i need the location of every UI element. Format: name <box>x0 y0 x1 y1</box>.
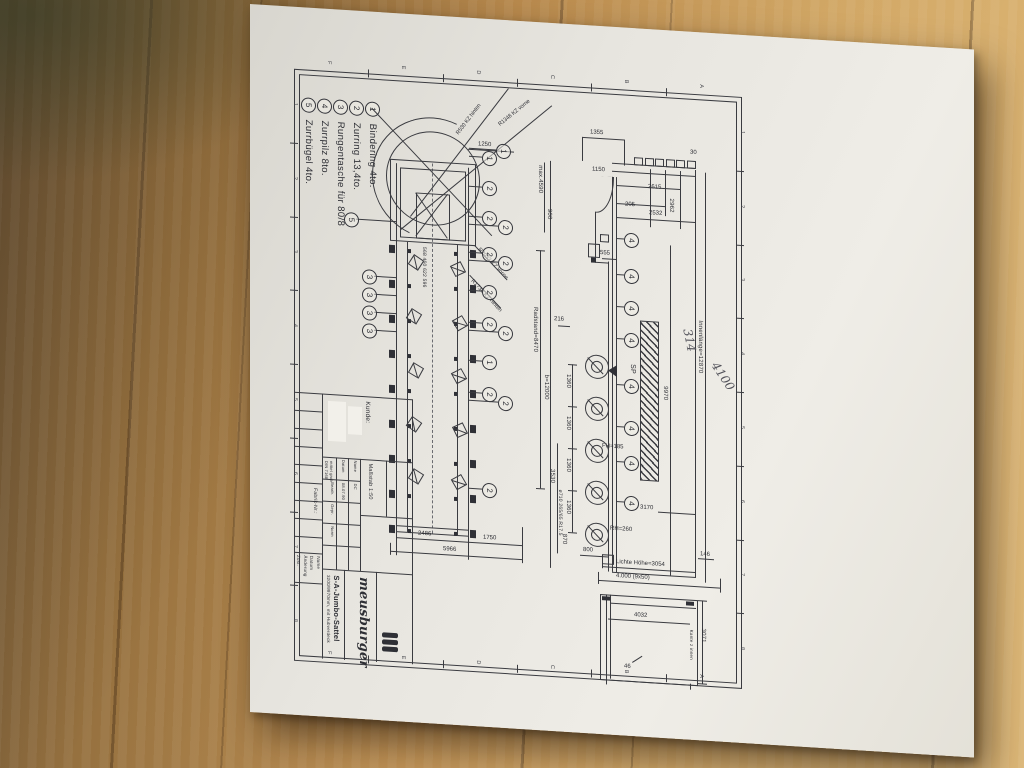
legend-number-3: 3 <box>333 99 348 115</box>
stake-pocket <box>408 389 411 393</box>
grid-ref-number: 8 <box>292 619 298 623</box>
legend-number-4: 4 <box>317 98 332 114</box>
dim-30: 30 <box>690 150 697 156</box>
drawing-line <box>390 543 391 555</box>
stake-pocket <box>389 350 395 358</box>
drawing-line <box>290 142 298 144</box>
drawing-line <box>670 245 671 575</box>
dim-4032: 4032 <box>634 612 647 619</box>
grid-ref-number: 4 <box>292 324 298 328</box>
stake-pocket <box>389 385 395 393</box>
legend-item-2: Zurring 13,4to. <box>351 122 361 190</box>
drawing-line <box>544 162 545 232</box>
stake-pocket <box>454 497 457 501</box>
drawing-line <box>412 399 413 664</box>
drawing-line <box>386 461 387 517</box>
front-fitting <box>634 157 643 166</box>
product-name: S-A-Jumbo-Sattel <box>333 575 341 642</box>
scale-label: Maßstab 1:50 <box>367 463 373 499</box>
drawing-line <box>666 88 667 96</box>
callout-circle-2: 2 <box>498 220 513 236</box>
dim-5966: 5966 <box>443 546 456 553</box>
product-subtitle: 3200/9970mm, mit Hubverdeck <box>326 575 331 643</box>
drawing-line <box>413 364 418 378</box>
grid-ref-number: 1 <box>739 131 745 135</box>
drawing-line <box>413 469 418 483</box>
drawing-line <box>443 660 444 668</box>
drawing-line <box>690 684 691 690</box>
drawing-line <box>640 321 659 482</box>
drawing-line <box>290 511 298 513</box>
grid-ref-letter: E <box>400 65 406 69</box>
dim-1360-d: 1360 <box>565 500 571 515</box>
drawing-line <box>290 585 298 587</box>
grid-ref-letter: F <box>326 651 332 655</box>
drawing-line <box>368 69 369 77</box>
grid-ref-number: 1 <box>292 102 298 106</box>
drawing-line <box>290 437 298 439</box>
callout-circle-2: 2 <box>498 256 513 272</box>
drawing-line <box>382 646 398 652</box>
drawing-line <box>624 140 625 166</box>
stake-pocket <box>389 420 395 428</box>
rev-name: Name <box>316 556 321 569</box>
dim-46: 46 <box>624 664 631 670</box>
grid-ref-number: 2 <box>292 176 298 180</box>
dim-1250: 1250 <box>478 141 491 148</box>
callout-circle-2: 2 <box>498 396 513 412</box>
dim-2962: 2962 <box>668 198 674 213</box>
legend-item-3: Rungentasche für 80/8 <box>335 121 345 226</box>
grid-ref-number: 4 <box>739 352 745 356</box>
row-bearb: Bearb. <box>330 482 334 495</box>
front-fitting <box>676 160 685 169</box>
rev-zust: Zust. <box>296 555 301 566</box>
col-datum: Datum <box>341 460 345 473</box>
drawing-line <box>517 665 518 673</box>
dim-total-length: b=12000 <box>543 374 549 399</box>
drawing-line <box>591 669 592 677</box>
grid-ref-letter: A <box>697 84 703 88</box>
drawing-line <box>322 394 323 659</box>
dim-3530: 3530 <box>549 469 555 484</box>
drawing-line <box>522 527 523 563</box>
dim-900: 900 <box>546 209 552 220</box>
dim-3170: 3170 <box>640 505 653 512</box>
drawing-line <box>705 173 706 583</box>
stake-pocket <box>470 460 476 468</box>
desk-photo: 1122334455667788FFEEDDCCBBAA 1Bindering … <box>0 0 1024 768</box>
drawing-line <box>695 170 696 577</box>
grid-ref-number: 2 <box>739 204 745 208</box>
stake-pocket <box>470 530 476 538</box>
paper-sheet: 1122334455667788FFEEDDCCBBAA 1Bindering … <box>250 4 974 758</box>
grid-ref-number: 7 <box>292 545 298 549</box>
dim-1360-b: 1360 <box>565 416 571 431</box>
legend-item-5: Zurrbügel 4to. <box>303 119 313 184</box>
callout-circle-4: 4 <box>624 496 639 512</box>
grid-ref-letter: D <box>474 660 480 665</box>
grid-ref-letter: C <box>549 665 555 670</box>
drawing-line <box>686 601 694 606</box>
dim-pocket-spacing: 568 460 622 596 <box>421 247 426 288</box>
dim-wheelbase: Radstand=8470 <box>532 307 538 353</box>
drawing-line <box>443 74 444 82</box>
stake-pocket <box>454 252 457 256</box>
drawing-line <box>348 406 362 435</box>
dim-tyre: ø710 265/65 R17.5 <box>557 489 562 536</box>
drawing-line <box>602 556 603 568</box>
drawing-line <box>411 309 416 323</box>
note-kante: Kante z innen <box>689 630 694 660</box>
dim-2615: 2615 <box>648 184 661 191</box>
grid-ref-letter: C <box>549 75 555 80</box>
grid-ref-letter: B <box>623 79 629 83</box>
drawing-line <box>608 262 609 572</box>
stake-pocket <box>408 249 411 253</box>
drawing-line <box>344 570 345 660</box>
grid-ref-letter: E <box>400 655 406 659</box>
grid-ref-letter: F <box>326 61 332 65</box>
tolerance-1: DIN 7168 <box>324 461 328 480</box>
drawing-line <box>602 596 610 601</box>
drawing-line <box>550 161 551 568</box>
dim-max4590: max.4590 <box>537 165 543 193</box>
stake-pocket <box>389 245 395 253</box>
cell-date: 08.07.90 <box>341 483 345 500</box>
callout-circle-5: 5 <box>344 212 359 228</box>
stake-pocket <box>408 354 411 358</box>
dim-800: 800 <box>583 547 593 554</box>
callout-circle-4: 4 <box>624 301 639 317</box>
drawing-line <box>517 79 518 87</box>
callout-circle-4: 4 <box>624 233 639 249</box>
stake-pocket <box>389 490 395 498</box>
customer-label: Kunde: <box>364 401 371 423</box>
drawing-line <box>600 234 609 243</box>
dim-1750: 1750 <box>483 535 496 542</box>
grid-ref-number: 6 <box>292 471 298 475</box>
drawing-line <box>290 290 298 292</box>
row-gepr: Gepr. <box>330 504 334 515</box>
stake-pocket <box>389 315 395 323</box>
stake-pocket <box>408 529 411 533</box>
drawing-line <box>457 245 458 535</box>
drawing-line <box>591 257 596 262</box>
callout-circle-4: 4 <box>624 333 639 349</box>
callout-circle-4: 4 <box>624 421 639 437</box>
tolerance-2: mittel grob <box>329 461 333 482</box>
legend-number-2: 2 <box>349 100 364 116</box>
stake-pocket <box>454 357 457 361</box>
drawing-line <box>452 374 466 379</box>
stake-pocket <box>408 494 411 498</box>
dim-1360-c: 1360 <box>565 458 571 473</box>
drawing-line <box>540 250 541 488</box>
stake-pocket <box>454 392 457 396</box>
drawing-line <box>606 594 607 678</box>
callout-circle-1: 1 <box>496 143 511 159</box>
factory-number-label: Fabrik-Nr.: <box>312 488 317 514</box>
callout-circle-2: 2 <box>482 483 497 499</box>
rev-datum: Datum <box>309 556 314 571</box>
drawing-line <box>382 639 398 645</box>
rev-aenderung: Änderung <box>303 555 308 576</box>
dim-146: 146 <box>700 551 710 558</box>
drawing-line <box>290 364 298 366</box>
grid-ref-number: 8 <box>739 647 745 651</box>
drawing-line <box>591 83 592 91</box>
callout-circle-4: 4 <box>624 269 639 285</box>
legend-item-4: Zurrpilz 8to. <box>319 120 329 176</box>
grid-ref-number: 5 <box>292 397 298 401</box>
col-name: Name <box>353 460 357 472</box>
dim-3071: 3071 <box>700 628 706 643</box>
drawing-line <box>598 572 599 584</box>
stake-pocket <box>470 425 476 433</box>
drawing-line <box>452 480 466 485</box>
dim-555: 555 <box>600 250 610 257</box>
front-fitting <box>666 159 675 168</box>
callout-circle-2: 2 <box>482 285 497 301</box>
front-fitting <box>687 160 696 169</box>
front-fitting <box>645 158 654 167</box>
dim-205: 205 <box>625 202 635 209</box>
legend-number-5: 5 <box>301 97 316 113</box>
grid-ref-number: 3 <box>292 250 298 254</box>
front-fitting <box>655 158 664 167</box>
cell-initials: DC <box>353 483 357 489</box>
drawing-line <box>720 579 721 593</box>
stake-pocket <box>470 495 476 503</box>
dim-2486: 2486 <box>418 531 431 538</box>
callout-circle-4: 4 <box>624 456 639 472</box>
row-norm: Norm <box>330 526 334 537</box>
callout-circle-1: 1 <box>482 151 497 167</box>
stake-pocket <box>389 280 395 288</box>
drawing-line <box>290 216 298 218</box>
drawing-line <box>650 169 651 227</box>
drawing-line <box>376 572 377 662</box>
company-logo-text: meusburger <box>357 577 370 668</box>
callout-circle-2: 2 <box>482 181 497 197</box>
drawing-line <box>451 267 465 273</box>
drawing-line <box>665 170 666 216</box>
callout-circle-3: 3 <box>362 269 377 285</box>
dim-1150: 1150 <box>592 167 605 174</box>
stake-pocket <box>389 525 395 533</box>
callout-circle-4: 4 <box>624 379 639 395</box>
company-logo-mark <box>382 632 398 638</box>
drawing-line <box>336 457 337 569</box>
label-sp: SP <box>629 364 636 374</box>
callout-circle-3: 3 <box>362 323 377 339</box>
drawing-line <box>348 458 349 570</box>
grid-ref-number: 5 <box>739 426 745 430</box>
drawing-line <box>588 243 600 258</box>
drawing-line <box>453 428 467 434</box>
dim-9970: 9970 <box>662 386 668 401</box>
dim-1355: 1355 <box>590 129 603 136</box>
grid-ref-number: 6 <box>739 499 745 503</box>
callout-circle-3: 3 <box>362 287 377 303</box>
drawing-line <box>453 321 467 326</box>
drawing-line <box>610 595 611 679</box>
drawing-line <box>582 137 583 161</box>
dim-2532: 2532 <box>649 210 662 217</box>
drawing-line <box>606 678 607 684</box>
drawing-line <box>413 255 417 269</box>
callout-circle-1: 1 <box>482 355 497 371</box>
callout-circle-3: 3 <box>362 305 377 321</box>
stake-pocket <box>408 284 411 288</box>
stake-pocket <box>454 532 457 536</box>
stake-pocket <box>454 462 457 466</box>
stake-pocket <box>454 287 457 291</box>
grid-ref-letter: D <box>474 70 480 75</box>
drawing-line <box>680 171 681 229</box>
drawing-line <box>328 401 346 442</box>
dim-216: 216 <box>554 316 564 323</box>
dim-1360-a: 1360 <box>565 374 571 389</box>
callout-circle-2: 2 <box>498 326 513 342</box>
